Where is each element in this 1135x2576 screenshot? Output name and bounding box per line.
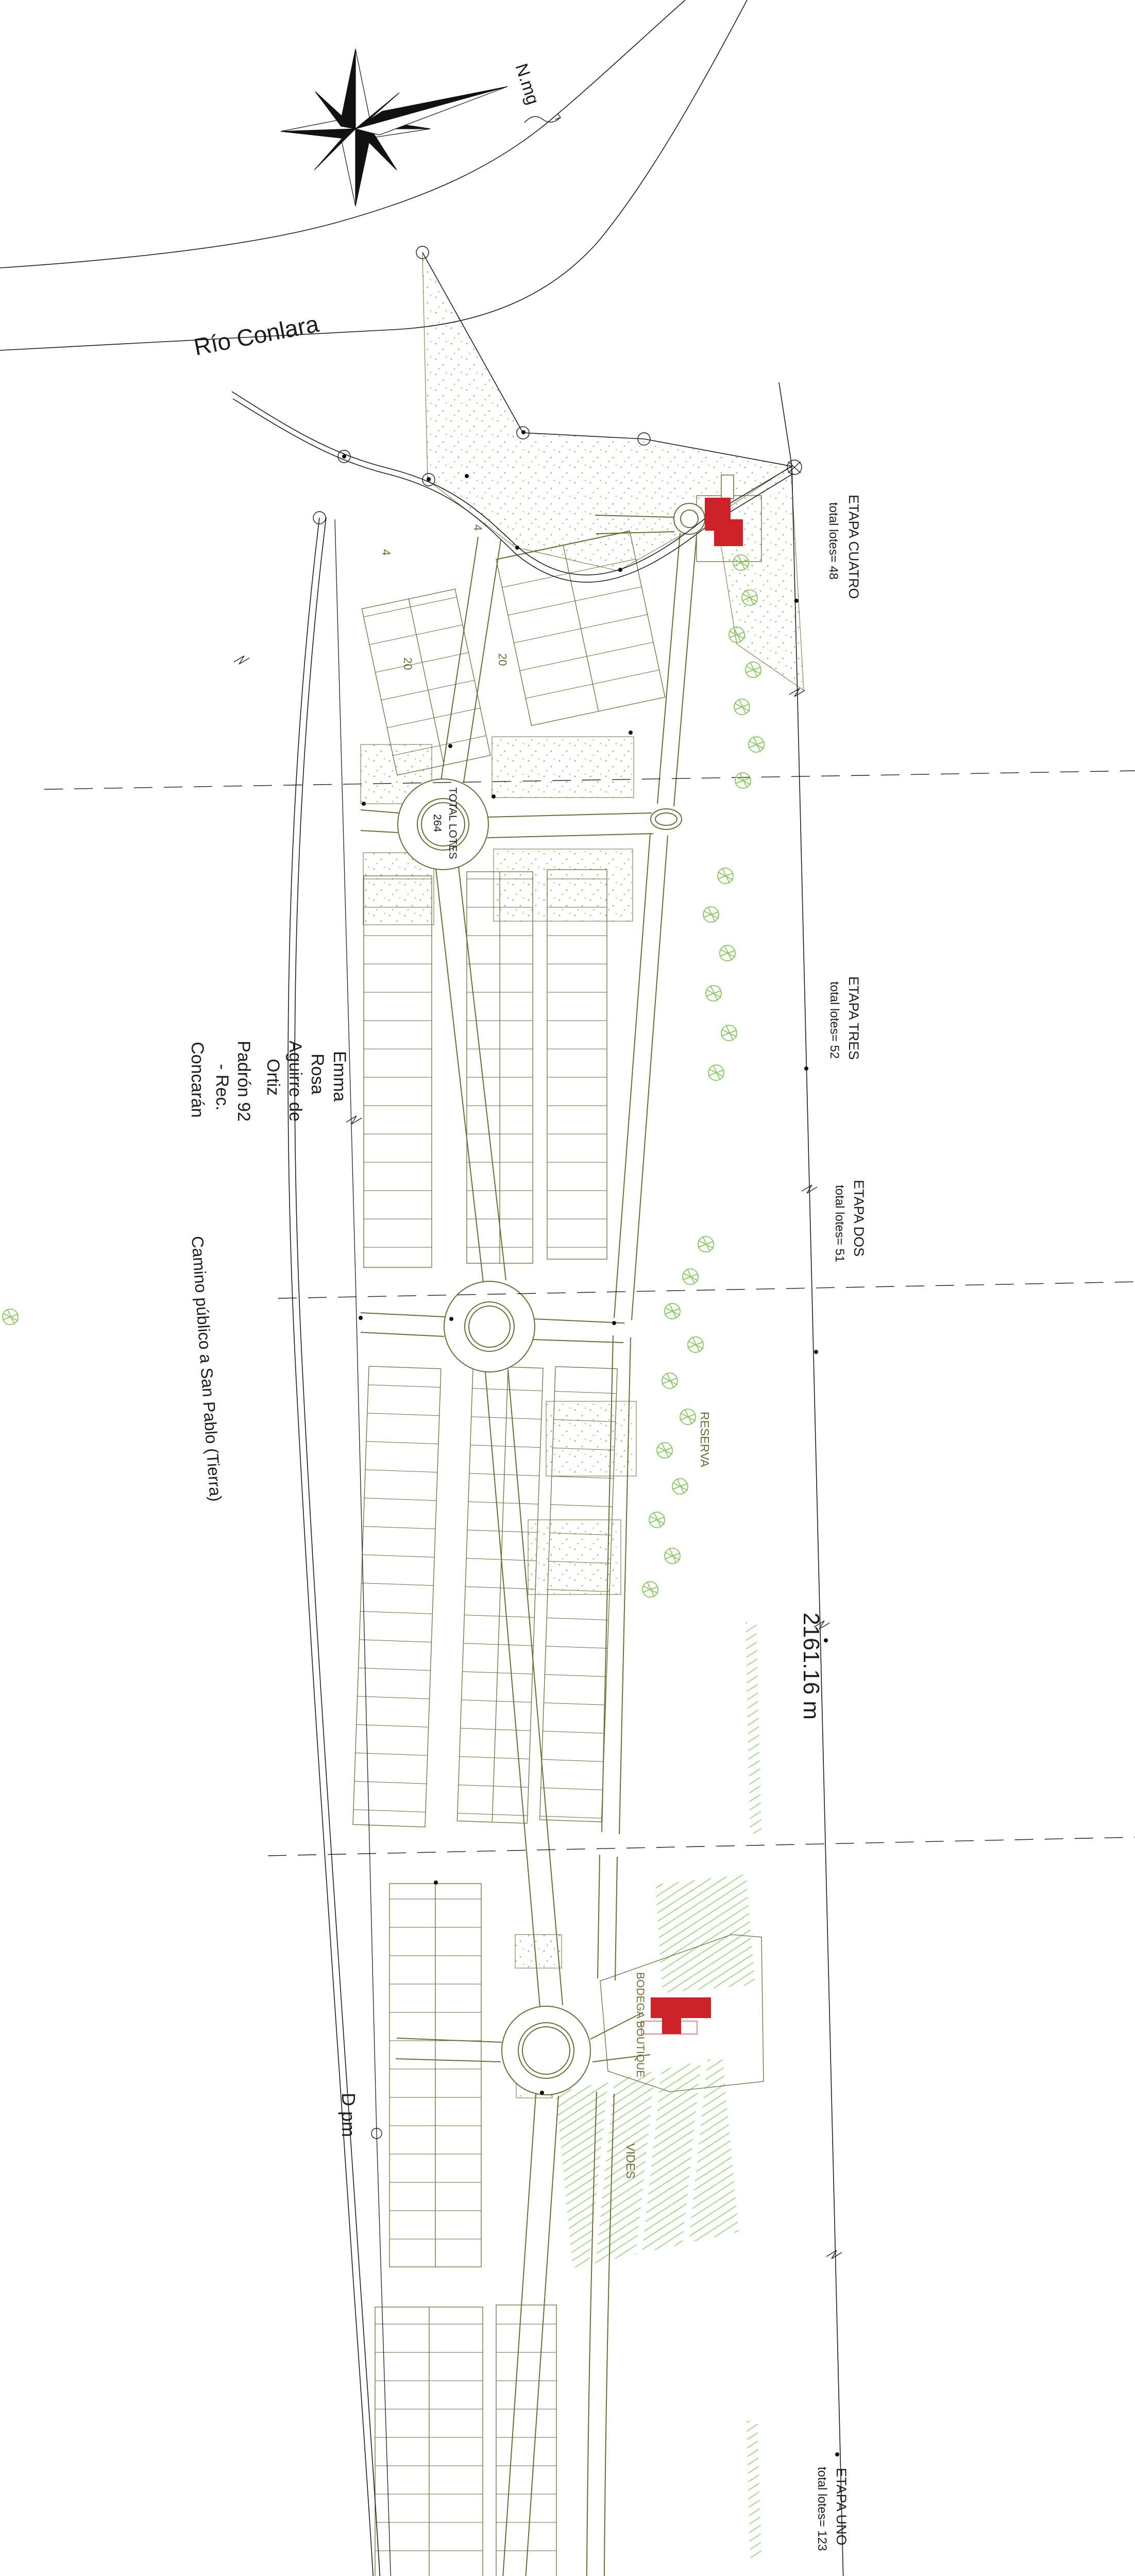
stage-two-label: ETAPA DOS bbox=[851, 1180, 867, 1257]
winery-label: BODEGA BOUTIQUE bbox=[634, 1972, 646, 2077]
owner-line: Aguirre de bbox=[285, 1041, 305, 1122]
buildings bbox=[641, 475, 743, 2034]
owner-line: Emma bbox=[330, 1051, 349, 1101]
east-boundary-dimension: 2161.16 m bbox=[799, 1613, 824, 1720]
stage-four-lots: total lotes= 48 bbox=[826, 502, 840, 580]
owner-line: Rosa bbox=[308, 1054, 327, 1094]
stage-two-lots: total lotes= 51 bbox=[833, 1185, 846, 1262]
lot-number: 4 bbox=[471, 524, 484, 531]
stage-one-label: ETAPA UNO bbox=[834, 2468, 849, 2546]
site-plan-canvas: N.mg Río Conlara Camino público a San Pa… bbox=[0, 0, 1135, 2576]
roundabout-total-label: TOTAL LOTES bbox=[447, 787, 459, 859]
lot-number: 20 bbox=[401, 657, 414, 670]
owner-line: Ortiz bbox=[263, 1059, 283, 1096]
river-flow-icon bbox=[524, 113, 561, 123]
roundabout-total-value: 264 bbox=[431, 814, 443, 832]
owner-line: Padrón 92 bbox=[234, 1041, 253, 1122]
lot-number: 20 bbox=[496, 653, 509, 666]
reserva-north-label: RESERVA bbox=[698, 1412, 712, 1467]
compass-rose-icon bbox=[281, 49, 507, 206]
vineyard-label: VIDES bbox=[624, 2143, 637, 2179]
site-plan-page: N.mg Río Conlara Camino público a San Pa… bbox=[0, 0, 1135, 2576]
lot-number: 4 bbox=[380, 549, 393, 555]
stage-four-label: ETAPA CUATRO bbox=[846, 495, 861, 599]
west-road-label: Camino público a San Pablo (Tierra) bbox=[188, 1235, 225, 1502]
owner-line: - Rec. bbox=[212, 1064, 232, 1111]
stage-three-label: ETAPA TRES bbox=[846, 976, 861, 1060]
stage-two-blocks bbox=[353, 1360, 617, 1833]
owner-line: Concarán bbox=[188, 1042, 207, 1117]
survey-point-d-label: D pm bbox=[338, 2093, 359, 2137]
north-label: N.mg bbox=[511, 61, 543, 107]
river-label: Río Conlara bbox=[192, 310, 321, 361]
stage-three-lots: total lotes= 52 bbox=[827, 981, 841, 1059]
river bbox=[0, 0, 747, 350]
stage-one-lots: total lotes= 123 bbox=[815, 2467, 829, 2551]
